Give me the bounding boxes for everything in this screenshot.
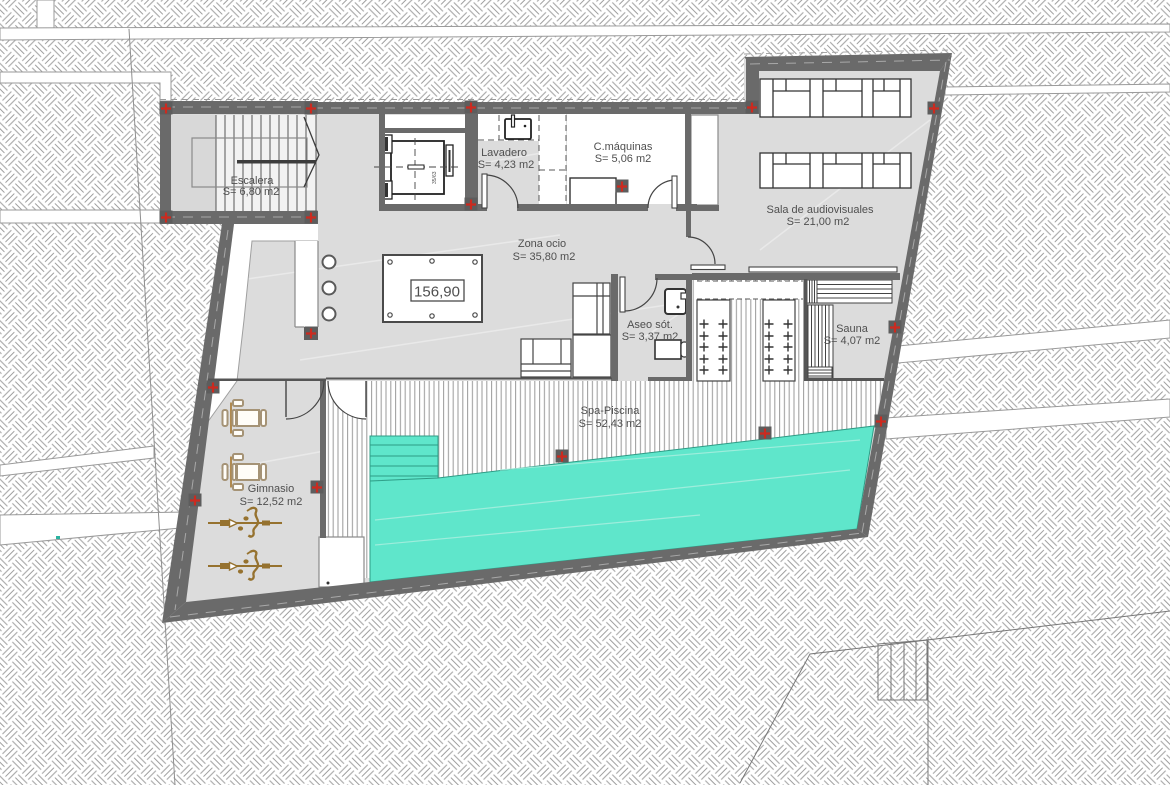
svg-text:S= 21,00 m2: S= 21,00 m2 [787,216,850,228]
svg-text:S= 4,07 m2: S= 4,07 m2 [824,335,881,347]
svg-text:C.máquinas: C.máquinas [594,141,653,153]
svg-text:Sauna: Sauna [836,323,869,335]
svg-text:156,90: 156,90 [414,284,460,301]
svg-text:Sala de audiovisuales: Sala de audiovisuales [766,204,874,216]
svg-text:Gimnasio: Gimnasio [248,483,294,495]
svg-text:S= 4,23 m2: S= 4,23 m2 [478,159,535,171]
svg-text:Spa-Piscina: Spa-Piscina [581,405,641,417]
svg-text:35/63: 35/63 [432,171,438,184]
svg-text:Aseo sót.: Aseo sót. [627,319,673,331]
svg-text:S= 52,43 m2: S= 52,43 m2 [579,418,642,430]
svg-text:S= 6,80 m2: S= 6,80 m2 [223,186,280,198]
svg-text:S= 5,06 m2: S= 5,06 m2 [595,153,652,165]
svg-text:Zona ocio: Zona ocio [518,238,566,250]
svg-text:S= 35,80 m2: S= 35,80 m2 [513,251,576,263]
svg-text:S= 3,37 m2: S= 3,37 m2 [622,331,679,343]
svg-text:Lavadero: Lavadero [481,147,527,159]
svg-text:S= 12,52 m2: S= 12,52 m2 [240,496,303,508]
